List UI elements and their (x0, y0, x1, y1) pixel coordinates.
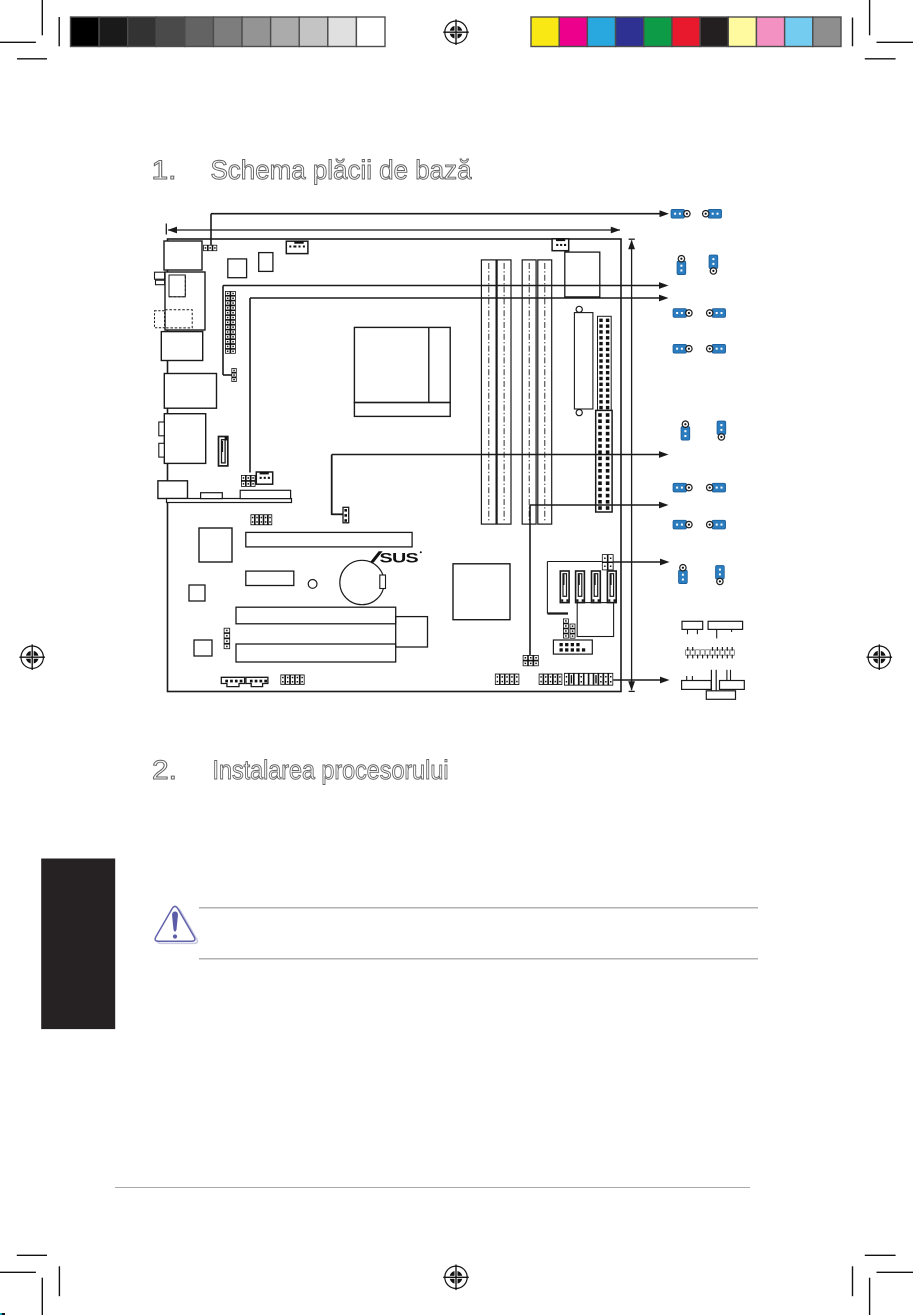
svg-text:1.: 1. (152, 155, 177, 185)
svg-text:Schema plăcii de bază: Schema plăcii de bază (211, 155, 472, 185)
svg-text:2.: 2. (152, 755, 177, 785)
svg-text:SUS: SUS (380, 550, 419, 565)
svg-text:Instalarea procesorului: Instalarea procesorului (213, 755, 449, 785)
